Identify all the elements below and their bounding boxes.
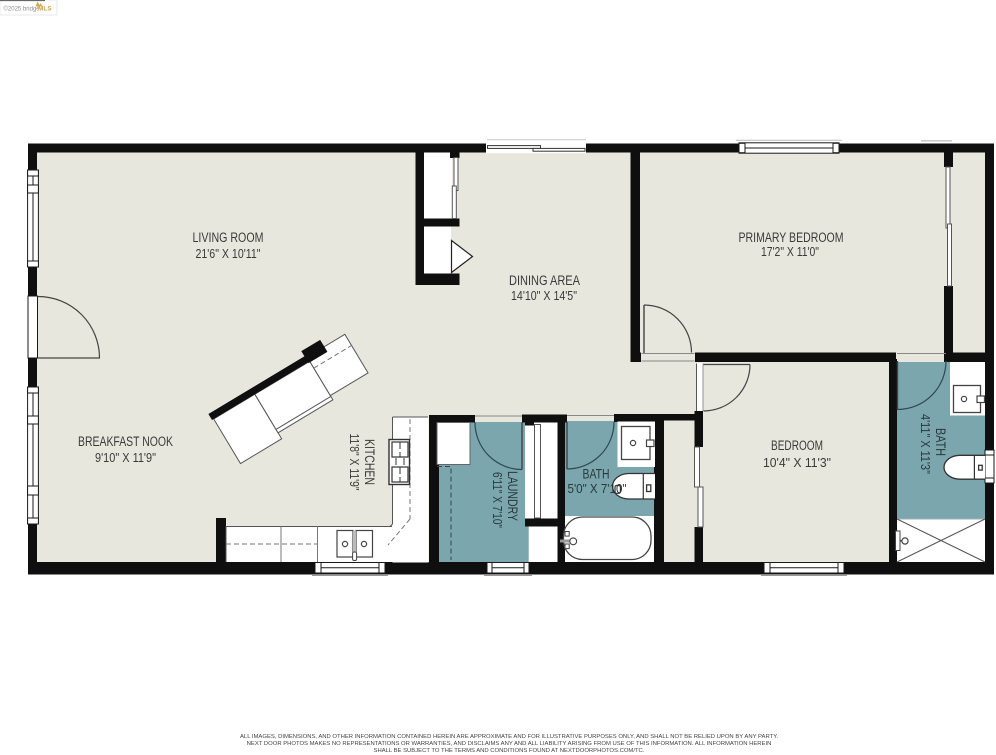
svg-text:11'8" X 11'9": 11'8" X 11'9" xyxy=(347,434,362,491)
svg-text:PRIMARY BEDROOM: PRIMARY BEDROOM xyxy=(739,230,844,245)
svg-text:6'11" X 7'10": 6'11" X 7'10" xyxy=(490,472,505,528)
svg-text:BATH: BATH xyxy=(933,428,948,456)
svg-text:21'6" X 10'11": 21'6" X 10'11" xyxy=(196,246,261,261)
svg-text:MLS: MLS xyxy=(38,6,52,13)
svg-text:LIVING ROOM: LIVING ROOM xyxy=(193,230,264,245)
svg-text:LAUNDRY: LAUNDRY xyxy=(505,471,520,521)
svg-text:4'11" X 11'3": 4'11" X 11'3" xyxy=(918,414,933,474)
svg-text:DINING AREA: DINING AREA xyxy=(509,273,580,288)
svg-text:NEXT DOOR PHOTOS MAKES NO REPR: NEXT DOOR PHOTOS MAKES NO REPRESENTATION… xyxy=(247,741,772,747)
svg-text:©2025 bridge: ©2025 bridge xyxy=(4,6,41,13)
svg-text:BEDROOM: BEDROOM xyxy=(771,438,823,453)
svg-text:SHALL BE SUBJECT TO THE TERMS: SHALL BE SUBJECT TO THE TERMS AND CONDIT… xyxy=(374,748,645,754)
svg-text:ALL IMAGES, DIMENSIONS, AND OT: ALL IMAGES, DIMENSIONS, AND OTHER INFORM… xyxy=(240,734,778,740)
svg-text:14'10" X 14'5": 14'10" X 14'5" xyxy=(511,288,577,303)
svg-text:17'2" X 11'0": 17'2" X 11'0" xyxy=(761,244,819,259)
svg-text:10'4" X 11'3": 10'4" X 11'3" xyxy=(763,455,831,470)
svg-text:KITCHEN: KITCHEN xyxy=(362,439,377,485)
svg-text:BREAKFAST NOOK: BREAKFAST NOOK xyxy=(78,434,173,449)
svg-text:9'10" X 11'9": 9'10" X 11'9" xyxy=(95,450,156,465)
svg-text:5'0" X 7'10": 5'0" X 7'10" xyxy=(568,481,627,496)
svg-text:BATH: BATH xyxy=(583,467,610,482)
